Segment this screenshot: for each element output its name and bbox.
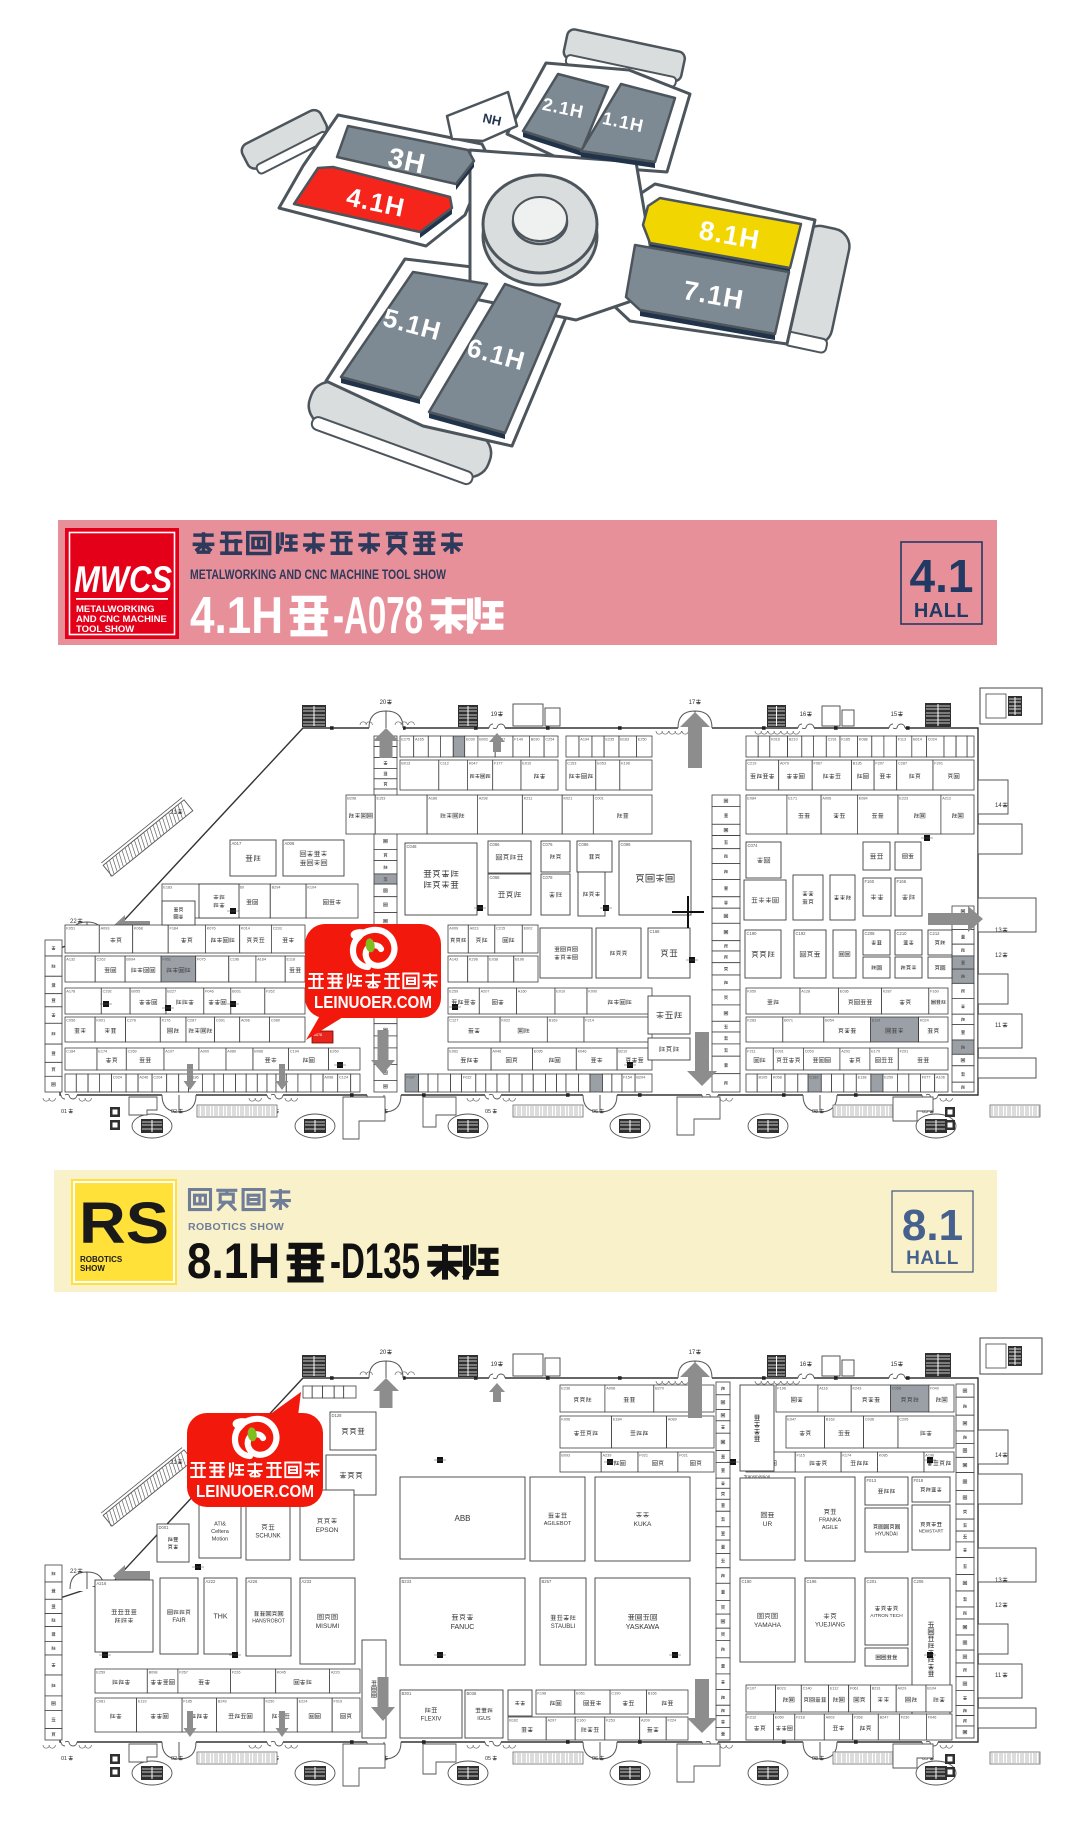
svg-text:K001: K001 (96, 1018, 105, 1022)
svg-text:F067: F067 (814, 761, 823, 765)
svg-text:F075: F075 (197, 957, 206, 961)
svg-text:A128: A128 (801, 989, 810, 993)
svg-text:A297: A297 (548, 1718, 557, 1722)
svg-text:NEWSTART: NEWSTART (919, 1529, 944, 1534)
svg-text:A009: A009 (449, 926, 458, 930)
svg-text:F160: F160 (865, 879, 875, 884)
svg-text:A233: A233 (302, 1579, 312, 1584)
svg-text:F214: F214 (585, 1018, 594, 1022)
svg-text:B104: B104 (927, 1686, 936, 1690)
svg-text:K014: K014 (241, 926, 250, 930)
svg-text:A164: A164 (257, 957, 266, 961)
svg-text:E184: E184 (613, 1417, 622, 1421)
svg-text:F218: F218 (796, 1715, 805, 1719)
svg-text:K006: K006 (561, 1417, 570, 1421)
svg-text:F061: F061 (850, 1686, 859, 1690)
svg-text:B210: B210 (789, 737, 798, 741)
svg-text:LEINUOER.COM: LEINUOER.COM (196, 1481, 314, 1501)
svg-text:A212: A212 (942, 796, 951, 800)
svg-text:B013: B013 (401, 761, 410, 765)
svg-text:C190: C190 (742, 1579, 753, 1584)
svg-text:B023: B023 (777, 1686, 786, 1690)
svg-text:C262: C262 (97, 957, 106, 961)
svg-text:E084: E084 (747, 796, 756, 800)
svg-text:SHOW: SHOW (80, 1264, 105, 1273)
svg-text:A196: A196 (925, 1453, 934, 1457)
svg-text:F185: F185 (183, 1699, 192, 1703)
svg-text:C196: C196 (807, 1579, 818, 1584)
svg-text:RS: RS (79, 1191, 169, 1256)
svg-text:A165: A165 (415, 737, 424, 741)
svg-text:IGUS: IGUS (477, 1716, 491, 1722)
svg-text:C208: C208 (865, 931, 876, 936)
svg-text:E224: E224 (299, 1699, 308, 1703)
svg-text:A160: A160 (518, 989, 527, 993)
svg-text:14: 14 (995, 1453, 1002, 1459)
svg-text:E051: E051 (576, 1691, 585, 1695)
svg-text:B298: B298 (347, 796, 356, 800)
svg-text:F196: F196 (777, 1386, 786, 1390)
svg-text:F211: F211 (747, 1049, 755, 1053)
svg-text:E038: E038 (489, 957, 498, 961)
svg-text:B227: B227 (167, 989, 176, 993)
svg-text:LEINUOER.COM: LEINUOER.COM (314, 992, 432, 1012)
svg-text:A096: A096 (241, 1018, 250, 1022)
svg-text:C204: C204 (153, 1075, 162, 1079)
svg-text:16: 16 (800, 1362, 807, 1368)
svg-text:C233: C233 (273, 926, 282, 930)
svg-text:K287: K287 (883, 989, 892, 993)
svg-text:B014: B014 (913, 737, 922, 741)
svg-text:C215: C215 (496, 926, 505, 930)
svg-text:K165: K165 (841, 737, 850, 741)
svg-text:D001: D001 (159, 1525, 170, 1530)
svg-text:K088: K088 (859, 737, 868, 741)
svg-text:B233: B233 (402, 1579, 412, 1584)
svg-text:F268: F268 (854, 1715, 863, 1719)
svg-text:15: 15 (891, 712, 898, 718)
svg-text:C219: C219 (747, 761, 756, 765)
svg-text:B031: B031 (232, 989, 241, 993)
svg-text:AGILE: AGILE (822, 1525, 839, 1531)
svg-text:K068: K068 (134, 926, 143, 930)
svg-text:Celtera: Celtera (211, 1529, 230, 1535)
svg-text:E223: E223 (899, 796, 908, 800)
svg-text:K174: K174 (842, 1453, 851, 1457)
svg-text:E119: E119 (138, 1699, 147, 1703)
svg-text:B166: B166 (648, 1691, 657, 1695)
svg-text:K000: K000 (588, 989, 597, 993)
svg-text:A246: A246 (139, 1075, 148, 1079)
svg-text:E259: E259 (884, 1075, 893, 1079)
svg-text:YAMAHA: YAMAHA (754, 1622, 782, 1629)
svg-text:E114: E114 (872, 1018, 881, 1022)
svg-text:K022: K022 (501, 1018, 510, 1022)
svg-text:B163: B163 (826, 1417, 835, 1421)
svg-text:A143: A143 (449, 957, 458, 961)
svg-text:C080: C080 (271, 1018, 280, 1022)
svg-text:4.1H: 4.1H (190, 587, 283, 645)
svg-text:08: 08 (812, 1756, 818, 1762)
svg-text:A216: A216 (97, 1581, 107, 1586)
svg-text:F021: F021 (679, 1453, 688, 1457)
svg-text:FLEXIV: FLEXIV (421, 1716, 442, 1722)
svg-text:K107: K107 (747, 1686, 756, 1690)
svg-text:F184: F184 (170, 926, 179, 930)
svg-text:E053: E053 (597, 761, 606, 765)
svg-text:F013: F013 (867, 1478, 877, 1483)
svg-text:ROBOTICS SHOW: ROBOTICS SHOW (188, 1221, 284, 1233)
svg-text:THK: THK (214, 1614, 228, 1621)
svg-text:STAUBLI: STAUBLI (551, 1624, 576, 1630)
svg-text:E118: E118 (287, 957, 296, 961)
svg-text:K024: K024 (920, 1018, 929, 1022)
svg-text:C269: C269 (128, 1049, 137, 1053)
svg-text:F166: F166 (897, 879, 907, 884)
svg-text:01: 01 (61, 1109, 67, 1115)
svg-text:C056: C056 (66, 1018, 75, 1022)
svg-text:08: 08 (812, 1109, 818, 1115)
svg-text:F177: F177 (494, 761, 503, 765)
svg-text:A079: A079 (780, 761, 789, 765)
svg-text:F051: F051 (162, 957, 171, 961)
svg-text:Motion: Motion (212, 1536, 229, 1542)
svg-text:K051: K051 (66, 926, 75, 930)
svg-text:K196: K196 (621, 761, 630, 765)
svg-text:C081: C081 (96, 1699, 105, 1703)
svg-text:21: 21 (170, 810, 177, 816)
svg-text:A023: A023 (470, 926, 479, 930)
svg-text:C291: C291 (828, 737, 837, 741)
svg-text:E010: E010 (522, 761, 531, 765)
svg-text:F267: F267 (179, 1670, 188, 1674)
svg-text:YASKAWA: YASKAWA (626, 1624, 660, 1631)
svg-text:B094: B094 (126, 957, 135, 961)
svg-text:A080: A080 (227, 1049, 236, 1053)
svg-text:A029: A029 (898, 1686, 907, 1690)
svg-text:A008: A008 (285, 841, 295, 846)
svg-text:F021: F021 (639, 1453, 648, 1457)
svg-text:C201: C201 (867, 1579, 878, 1584)
svg-text:B257: B257 (542, 1579, 552, 1584)
svg-text:F046: F046 (928, 1715, 937, 1719)
svg-text:K021: K021 (564, 796, 573, 800)
svg-text:E010: E010 (556, 989, 565, 993)
svg-text:A220: A220 (331, 1670, 340, 1674)
svg-text:C036: C036 (865, 1417, 874, 1421)
svg-text:SCHUNK: SCHUNK (255, 1534, 280, 1540)
svg-text:B135: B135 (853, 761, 862, 765)
svg-text:F160: F160 (930, 989, 939, 993)
svg-text:02: 02 (171, 1756, 177, 1762)
svg-text:F291: F291 (900, 1049, 909, 1053)
svg-text:C053: C053 (805, 1049, 814, 1053)
svg-text:B169: B169 (549, 1018, 558, 1022)
svg-text:C153: C153 (567, 761, 576, 765)
svg-text:E084: E084 (859, 796, 868, 800)
svg-text:F149: F149 (514, 737, 523, 741)
svg-text:B294: B294 (272, 885, 281, 889)
svg-text:A298: A298 (479, 796, 488, 800)
svg-text:B249: B249 (218, 1699, 227, 1703)
svg-text:C086: C086 (579, 842, 590, 847)
svg-text:A239: A239 (603, 1453, 612, 1457)
svg-text:01: 01 (61, 1756, 67, 1762)
svg-text:A107: A107 (165, 1049, 174, 1053)
svg-text:K250: K250 (266, 1699, 275, 1703)
svg-text:B301: B301 (402, 1691, 412, 1696)
svg-text:E002: E002 (524, 926, 533, 930)
svg-text:13: 13 (995, 1578, 1002, 1584)
svg-text:KUKA: KUKA (634, 1521, 652, 1528)
svg-text:F077: F077 (922, 1075, 931, 1079)
svg-text:C168: C168 (650, 929, 661, 934)
svg-text:C058: C058 (892, 1386, 901, 1390)
svg-text:METALWORKING AND CNC MACHINE T: METALWORKING AND CNC MACHINE TOOL SHOW (190, 567, 446, 582)
svg-text:E236: E236 (561, 1386, 570, 1390)
svg-text:HALL: HALL (906, 1248, 959, 1269)
svg-text:AGILEBOT: AGILEBOT (544, 1521, 572, 1527)
svg-text:K211: K211 (524, 796, 533, 800)
svg-text:A089: A089 (668, 1417, 677, 1421)
svg-text:F207: F207 (875, 761, 884, 765)
svg-text:C190: C190 (747, 931, 758, 936)
svg-text:C287: C287 (187, 1018, 196, 1022)
svg-text:A226: A226 (248, 1579, 258, 1584)
svg-text:F113: F113 (898, 737, 906, 741)
svg-text:F154: F154 (623, 1075, 632, 1079)
svg-text:C001: C001 (595, 796, 604, 800)
svg-text:19: 19 (491, 712, 498, 718)
svg-text:17: 17 (689, 700, 696, 706)
svg-text:E153: E153 (377, 796, 386, 800)
svg-text:E112: E112 (830, 1686, 839, 1690)
svg-text:B054: B054 (825, 1018, 834, 1022)
svg-text:K016: K016 (771, 737, 780, 741)
svg-text:AITRON TECH: AITRON TECH (870, 1613, 903, 1619)
svg-text:A186: A186 (428, 796, 437, 800)
svg-text:B098: B098 (149, 1670, 158, 1674)
svg-text:E030: E030 (466, 737, 475, 741)
svg-text:E235: E235 (605, 737, 614, 741)
svg-text:C024: C024 (928, 737, 937, 741)
svg-text:C140: C140 (803, 1686, 812, 1690)
svg-text:05: 05 (485, 1109, 491, 1115)
svg-text:B231: B231 (872, 1686, 881, 1690)
svg-text:K046: K046 (578, 1049, 587, 1053)
svg-text:B105: B105 (759, 1075, 768, 1079)
svg-text:F230: F230 (901, 1715, 910, 1719)
svg-text:A116: A116 (819, 1386, 828, 1390)
svg-text:C066: C066 (490, 842, 501, 847)
svg-text:C196: C196 (230, 957, 239, 961)
svg-text:F022: F022 (463, 1075, 472, 1079)
svg-text:C190: C190 (611, 1691, 620, 1695)
svg-text:8.1: 8.1 (902, 1201, 963, 1250)
svg-text:C212: C212 (930, 931, 941, 936)
svg-text:C254: C254 (545, 737, 554, 741)
svg-text:12: 12 (995, 1603, 1002, 1609)
svg-text:ATI&: ATI& (214, 1521, 226, 1527)
svg-text:A178: A178 (66, 989, 75, 993)
svg-text:K047: K047 (469, 761, 478, 765)
svg-text:E036: E036 (840, 989, 849, 993)
svg-text:K243: K243 (853, 1386, 862, 1390)
svg-text:17: 17 (689, 1350, 696, 1356)
svg-text:C074: C074 (748, 843, 759, 848)
svg-text:A292: A292 (841, 1049, 850, 1053)
svg-text:B270: B270 (655, 1386, 664, 1390)
svg-text:C292: C292 (103, 989, 112, 993)
svg-text:A006: A006 (822, 796, 831, 800)
svg-text:MISUMI: MISUMI (316, 1623, 340, 1630)
svg-text:C210: C210 (897, 931, 908, 936)
svg-text:11: 11 (995, 1023, 1002, 1029)
svg-text:F046: F046 (205, 989, 214, 993)
svg-text:C206: C206 (914, 1579, 925, 1584)
svg-text:A017: A017 (232, 841, 242, 846)
svg-text:E138: E138 (858, 1075, 867, 1079)
svg-text:F262: F262 (266, 989, 275, 993)
svg-text:K058: K058 (773, 1075, 782, 1079)
svg-text:12: 12 (995, 953, 1002, 959)
svg-text:20: 20 (380, 700, 387, 706)
svg-text:F226: F226 (232, 1670, 241, 1674)
svg-text:C068: C068 (490, 875, 501, 880)
svg-text:K104: K104 (307, 885, 316, 889)
svg-text:K296: K296 (469, 957, 478, 961)
svg-text:A194: A194 (580, 737, 589, 741)
svg-text:F037: F037 (406, 1075, 415, 1079)
svg-text:F115: F115 (797, 1453, 805, 1457)
svg-text:A209: A209 (641, 1718, 650, 1722)
svg-text:B030: B030 (531, 737, 540, 741)
svg-text:A000: A000 (200, 1049, 209, 1053)
svg-text:C127: C127 (449, 1018, 458, 1022)
svg-text:K085: K085 (879, 1453, 888, 1457)
svg-text:ABB: ABB (454, 1514, 470, 1523)
svg-text:C091: C091 (775, 1049, 784, 1053)
svg-text:15: 15 (891, 1362, 898, 1368)
svg-text:E275: E275 (401, 737, 410, 741)
svg-text:B002: B002 (479, 737, 488, 741)
svg-text:K045: K045 (277, 1670, 286, 1674)
svg-text:20: 20 (380, 1350, 387, 1356)
svg-text:E095: E095 (534, 1049, 543, 1053)
svg-text:F018: F018 (914, 1478, 924, 1483)
svg-text:A008: A008 (606, 1386, 615, 1390)
svg-text:E259: E259 (449, 989, 458, 993)
svg-text:-D135: -D135 (330, 1233, 420, 1289)
svg-text:B210: B210 (618, 1049, 627, 1053)
svg-text:13: 13 (995, 928, 1002, 934)
svg-text:05: 05 (485, 1756, 491, 1762)
svg-text:YUEJIANG: YUEJIANG (815, 1623, 845, 1629)
svg-text:A222: A222 (206, 1579, 216, 1584)
svg-text:A098: A098 (324, 1075, 333, 1079)
svg-text:FANUC: FANUC (451, 1624, 475, 1631)
svg-text:4.1: 4.1 (910, 550, 974, 602)
svg-text:K076: K076 (207, 926, 216, 930)
svg-text:FAIR: FAIR (172, 1618, 186, 1624)
svg-text:19: 19 (491, 1362, 498, 1368)
svg-text:K212: K212 (747, 1715, 756, 1719)
svg-text:HYUNDAI: HYUNDAI (875, 1531, 898, 1537)
svg-text:K198: K198 (537, 1691, 546, 1695)
svg-text:F019: F019 (334, 1699, 343, 1703)
svg-text:C048: C048 (407, 844, 418, 849)
svg-text:E171: E171 (788, 796, 797, 800)
svg-text:A132: A132 (66, 957, 75, 961)
svg-text:C194: C194 (290, 1049, 299, 1053)
svg-text:E260: E260 (330, 1049, 339, 1053)
svg-text:16: 16 (800, 712, 807, 718)
svg-text:E183: E183 (163, 885, 172, 889)
svg-text:11: 11 (995, 1673, 1002, 1679)
svg-text:D128: D128 (332, 1413, 343, 1418)
svg-text:C276: C276 (127, 1018, 136, 1022)
svg-text:K283: K283 (747, 1018, 756, 1022)
svg-text:F224: F224 (668, 1718, 677, 1722)
svg-text:22: 22 (70, 1569, 77, 1575)
svg-text:F201: F201 (934, 761, 943, 765)
svg-text:C192: C192 (796, 931, 807, 936)
svg-text:E250: E250 (638, 737, 647, 741)
svg-text:B162: B162 (509, 1718, 518, 1722)
svg-text:HANS'ROBOT: HANS'ROBOT (252, 1619, 285, 1625)
svg-text:A207: A207 (481, 989, 490, 993)
svg-text:C096: C096 (621, 842, 632, 847)
svg-text:C078: C078 (543, 875, 554, 880)
svg-text:B093: B093 (561, 1453, 570, 1457)
svg-text:B036: B036 (467, 1691, 477, 1696)
svg-text:F040: F040 (930, 1386, 939, 1390)
svg-text:E174: E174 (98, 1049, 107, 1053)
svg-text:EPSON: EPSON (316, 1527, 339, 1534)
svg-text:06: 06 (592, 1109, 598, 1115)
svg-text:E047: E047 (787, 1417, 796, 1421)
svg-text:21: 21 (170, 1460, 177, 1466)
svg-text:K050: K050 (747, 989, 756, 993)
svg-text:B204: B204 (636, 1075, 645, 1079)
svg-text:C076: C076 (543, 842, 554, 847)
svg-text:E170: E170 (871, 1049, 880, 1053)
svg-text:C124: C124 (339, 1075, 348, 1079)
svg-text:TOOL SHOW: TOOL SHOW (76, 624, 134, 635)
svg-text:C160: C160 (577, 1718, 586, 1722)
svg-text:22: 22 (70, 919, 77, 925)
svg-text:C024: C024 (113, 1075, 122, 1079)
svg-text:E259: E259 (96, 1670, 105, 1674)
svg-text:MWCS: MWCS (74, 559, 172, 600)
svg-text:A046: A046 (492, 1049, 501, 1053)
svg-text:-A078: -A078 (333, 587, 423, 645)
svg-text:A003: A003 (826, 1715, 835, 1719)
svg-text:C189: C189 (809, 1075, 818, 1079)
svg-text:UR: UR (763, 1521, 773, 1528)
svg-text:B247: B247 (880, 1715, 889, 1719)
svg-text:C205: C205 (899, 1417, 908, 1421)
svg-text:C184: C184 (66, 1049, 75, 1053)
svg-text:E062: E062 (449, 1049, 458, 1053)
svg-text:B071: B071 (784, 1018, 793, 1022)
svg-text:14: 14 (995, 803, 1002, 809)
svg-text:02: 02 (171, 1109, 177, 1115)
svg-text:ROBOTICS: ROBOTICS (80, 1255, 123, 1264)
svg-text:A106: A106 (936, 1075, 945, 1079)
svg-text:8.1H: 8.1H (187, 1233, 280, 1289)
svg-text:B196: B196 (515, 957, 524, 961)
